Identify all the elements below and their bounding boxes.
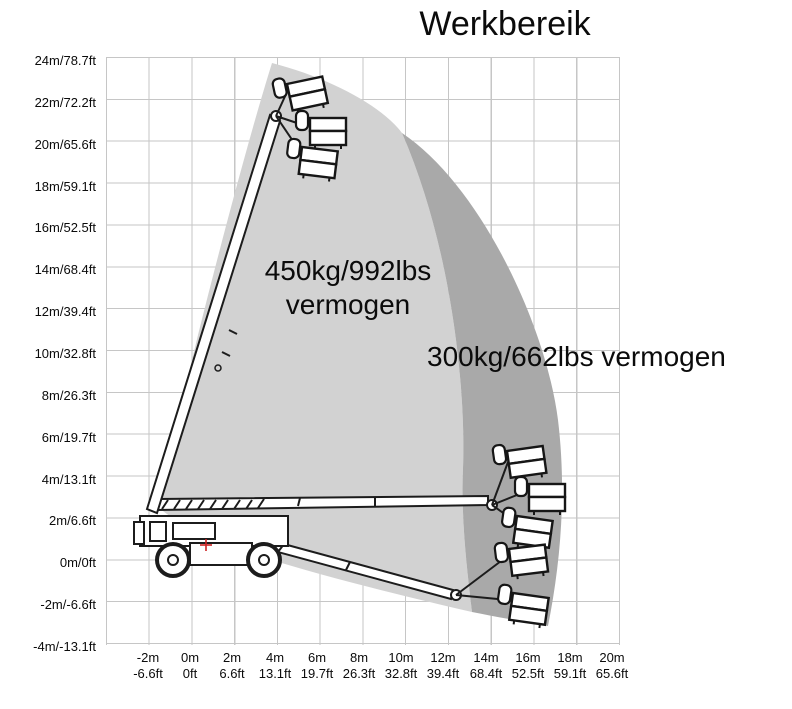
x-tick: 2m6.6ft (219, 650, 244, 682)
x-tick: 6m19.7ft (301, 650, 334, 682)
y-tick: 10m/32.8ft (4, 346, 96, 361)
axle-bogie (190, 543, 252, 565)
x-tick: -2m-6.6ft (133, 650, 163, 682)
y-tick: 4m/13.1ft (4, 472, 96, 487)
y-tick: 16m/52.5ft (4, 220, 96, 235)
wheel-rear (157, 544, 189, 576)
zone-450-label-line2: vermogen (286, 289, 411, 320)
x-tick: 0m0ft (181, 650, 199, 682)
y-tick: 20m/65.6ft (4, 137, 96, 152)
y-tick: 2m/6.6ft (4, 513, 96, 528)
y-tick: -2m/-6.6ft (4, 597, 96, 612)
x-tick: 8m26.3ft (343, 650, 376, 682)
y-tick: 6m/19.7ft (4, 430, 96, 445)
y-tick: -4m/-13.1ft (4, 639, 96, 654)
x-tick: 18m59.1ft (554, 650, 587, 682)
y-tick: 24m/78.7ft (4, 53, 96, 68)
x-tick: 12m39.4ft (427, 650, 460, 682)
y-tick: 14m/68.4ft (4, 262, 96, 277)
y-tick: 22m/72.2ft (4, 95, 96, 110)
zone-450-label-line1: 450kg/992lbs (265, 255, 432, 286)
x-tick: 10m32.8ft (385, 650, 418, 682)
x-tick: 4m13.1ft (259, 650, 292, 682)
x-tick: 16m52.5ft (512, 650, 545, 682)
y-tick: 8m/26.3ft (4, 388, 96, 403)
y-tick: 12m/39.4ft (4, 304, 96, 319)
y-tick: 18m/59.1ft (4, 179, 96, 194)
zone-300-label: 300kg/662lbs vermogen (427, 340, 726, 374)
x-tick: 14m68.4ft (470, 650, 503, 682)
y-tick: 0m/0ft (4, 555, 96, 570)
x-tick: 20m65.6ft (596, 650, 629, 682)
wheel-front (248, 544, 280, 576)
zone-450-label: 450kg/992lbs vermogen (265, 254, 432, 322)
